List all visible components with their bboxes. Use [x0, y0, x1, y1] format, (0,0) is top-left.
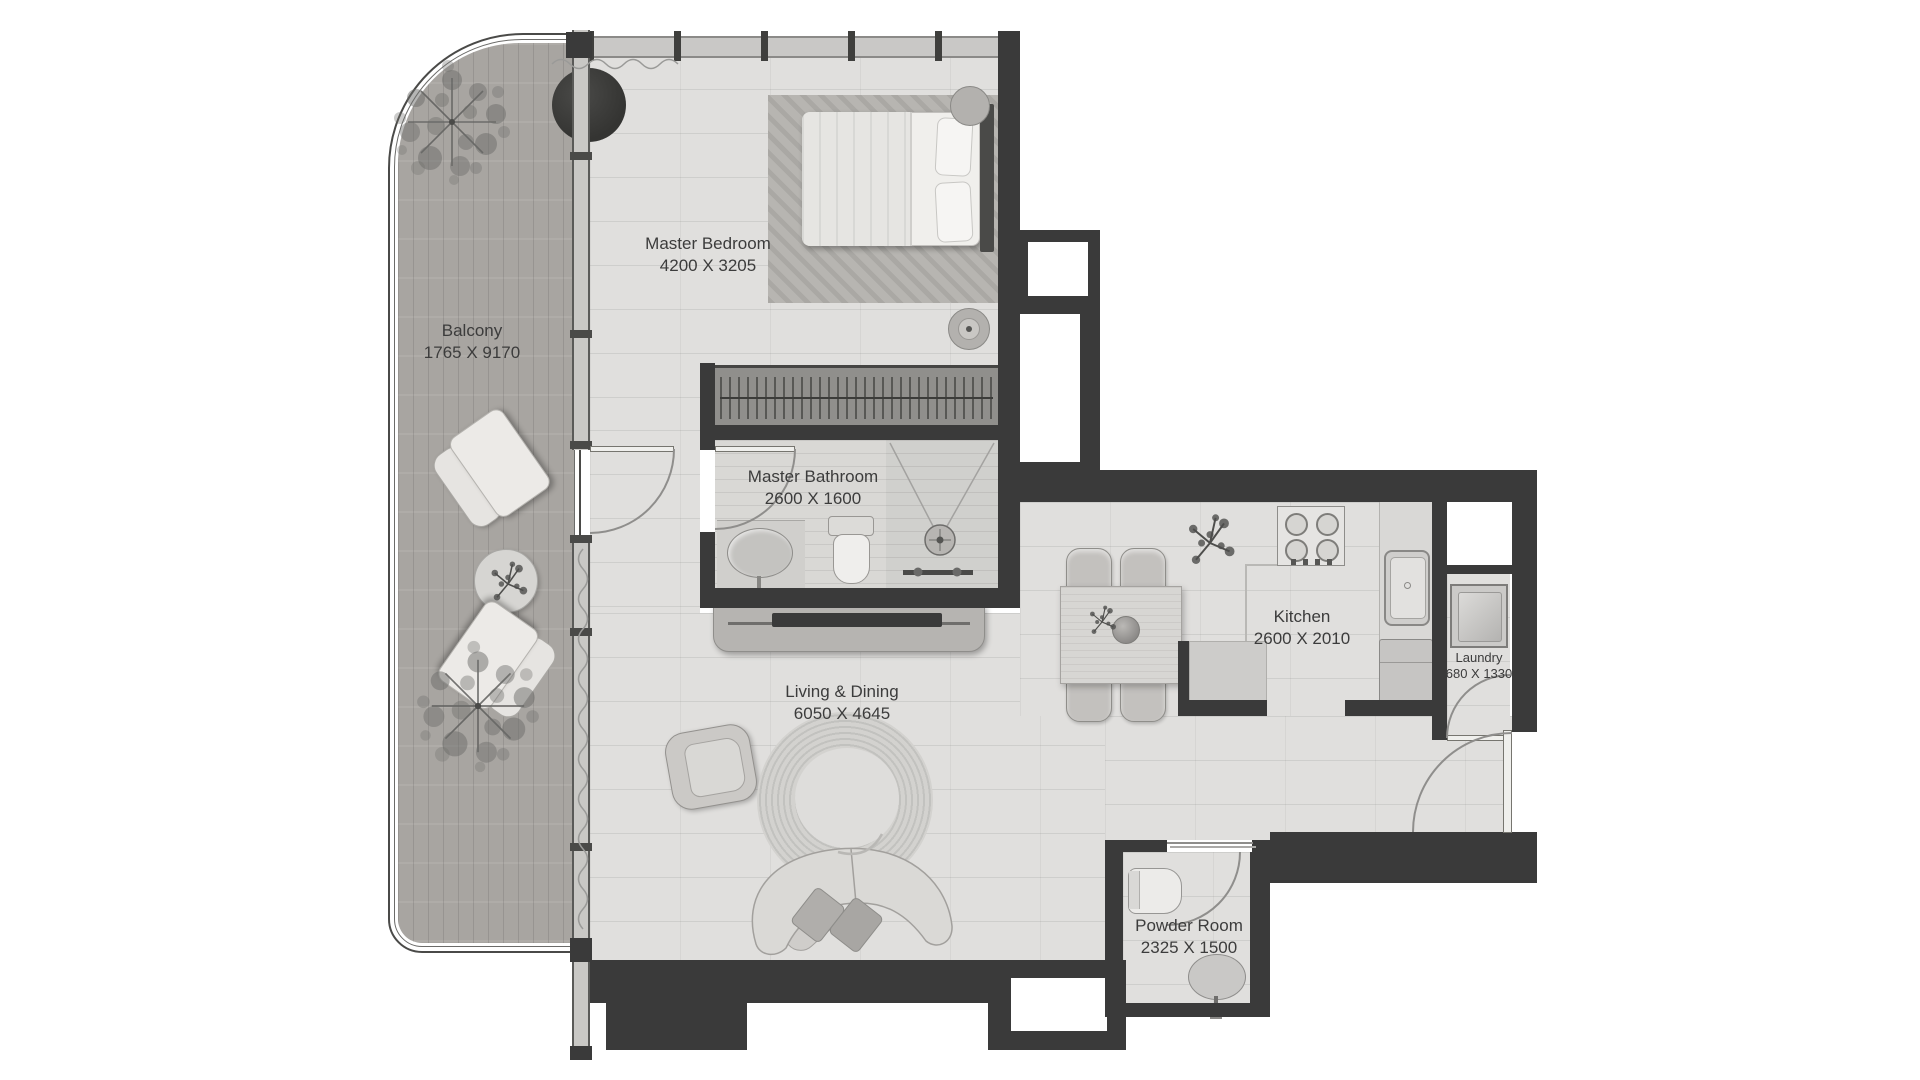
entry-door-leaf: [1503, 730, 1512, 833]
kitchen-bottom-stub-left: [1178, 700, 1267, 716]
room-dims: 2600 X 2010: [1254, 628, 1350, 650]
glass-mullion: [570, 535, 592, 543]
room-dims: 4200 X 3205: [645, 255, 771, 277]
room-dims: 2325 X 1500: [1135, 937, 1243, 959]
shaft-void-upper: [1028, 242, 1088, 296]
glass-wall-bottom-cap: [570, 1046, 592, 1060]
corridor-floor: [590, 430, 700, 613]
bathroom-door-leaf: [715, 446, 795, 452]
kitchen-counter-line-v: [1245, 564, 1247, 642]
bed-pillow: [934, 181, 973, 243]
room-label-master-bedroom: Master Bedroom 4200 X 3205: [645, 233, 771, 277]
room-name: Master Bedroom: [645, 233, 771, 255]
balcony-door-leaf: [590, 446, 674, 452]
burner: [1285, 513, 1308, 536]
headboard: [980, 104, 994, 252]
room-name: Powder Room: [1135, 915, 1243, 937]
stove-knob: [1315, 559, 1320, 565]
nightstand-bottom-dot: [966, 326, 972, 332]
dining-chair: [1066, 678, 1112, 722]
tv-console: [713, 604, 985, 652]
room-dims: 6050 X 4645: [785, 703, 898, 725]
kitchen-island: [1189, 641, 1267, 701]
bathroom-sink: [727, 528, 793, 578]
window-mullion: [848, 31, 855, 61]
shower-zone: [886, 440, 998, 588]
stove: [1277, 506, 1345, 566]
room-dims: 2600 X 1600: [748, 488, 878, 510]
laundry-door-leaf: [1447, 735, 1510, 741]
tv: [772, 613, 942, 627]
bottom-wall-opening: [1011, 978, 1107, 1031]
powder-sink: [1188, 954, 1246, 1000]
toilet: [833, 534, 870, 584]
room-label-kitchen: Kitchen 2600 X 2010: [1254, 606, 1350, 650]
room-name: Master Bathroom: [748, 466, 878, 488]
room-dims: 680 X 1330: [1446, 666, 1513, 682]
bed-pillow: [935, 117, 974, 177]
shaft-void-lower: [1020, 314, 1080, 462]
toilet-tank: [828, 516, 874, 536]
right-outer-wall-upper: [1512, 470, 1537, 732]
window-mullion: [935, 31, 942, 61]
kitchen-sink: [1384, 550, 1430, 626]
powder-top-wall-a: [1105, 840, 1167, 852]
fridge-divider: [1380, 662, 1432, 663]
room-label-balcony: Balcony 1765 X 9170: [424, 320, 520, 364]
laundry-void-separator: [1447, 565, 1512, 574]
kitchen-top-wall: [1020, 470, 1537, 502]
bottom-wall-block-left: [606, 1003, 747, 1050]
kitchen-counter-line-h: [1246, 564, 1279, 566]
bedroom-right-wall: [998, 31, 1020, 608]
room-label-powder-room: Powder Room 2325 X 1500: [1135, 915, 1243, 959]
glass-wall-mid-cap: [570, 938, 592, 962]
kitchen-bottom-stub-right: [1345, 700, 1447, 716]
window-mullion: [674, 31, 681, 61]
bed-blanket: [802, 112, 912, 246]
room-dims: 1765 X 9170: [424, 342, 520, 364]
powder-right-wall: [1250, 852, 1270, 1017]
balcony-glass-wall-upper: [572, 30, 590, 450]
dining-chair: [1120, 678, 1166, 722]
room-name: Living & Dining: [785, 681, 898, 703]
stove-knob: [1291, 559, 1296, 565]
wardrobe: [715, 365, 998, 425]
room-label-master-bathroom: Master Bathroom 2600 X 1600: [748, 466, 878, 510]
round-rug-inner: [795, 748, 899, 848]
room-name: Laundry: [1446, 650, 1513, 666]
powder-bottom-wall: [1105, 1003, 1270, 1017]
balcony-glass-wall-lower: [572, 535, 590, 1058]
powder-toilet-tank: [1129, 871, 1140, 909]
room-name: Kitchen: [1254, 606, 1350, 628]
bathroom-left-wall-upper: [700, 363, 715, 450]
powder-sliding-door: [1167, 842, 1253, 844]
wardrobe-rail: [720, 397, 993, 399]
glass-mullion: [570, 843, 592, 851]
washer-drum: [1458, 592, 1502, 642]
armchair-cushion: [683, 736, 748, 799]
glass-mullion: [570, 152, 592, 160]
burner: [1316, 513, 1339, 536]
fridge: [1379, 639, 1433, 709]
bedroom-window-wall: [570, 36, 1020, 58]
glass-mullion: [570, 628, 592, 636]
powder-sliding-door-track: [1170, 846, 1256, 848]
bathroom-bottom-wall: [700, 588, 1020, 608]
nightstand-top: [950, 86, 990, 126]
window-mullion: [761, 31, 768, 61]
stove-knob: [1327, 559, 1332, 565]
glass-mullion: [570, 330, 592, 338]
room-label-laundry: Laundry 680 X 1330: [1446, 650, 1513, 682]
glass-wall-top-cap: [566, 32, 592, 58]
right-outer-wall-lower: [1270, 832, 1537, 883]
floor-plan: Balcony 1765 X 9170 Master Bedroom 4200 …: [0, 0, 1920, 1080]
armchair: [662, 721, 760, 813]
powder-left-wall: [1105, 840, 1123, 1017]
powder-toilet: [1128, 868, 1182, 914]
washing-machine: [1450, 584, 1508, 648]
island-wall-edge: [1178, 641, 1189, 701]
stove-knob: [1303, 559, 1308, 565]
table-centerpiece: [1112, 616, 1140, 644]
room-label-living-dining: Living & Dining 6050 X 4645: [785, 681, 898, 725]
glass-mullion: [570, 441, 592, 449]
bathroom-top-wall: [715, 425, 998, 440]
room-name: Balcony: [424, 320, 520, 342]
kitchen-sink-drain: [1404, 582, 1411, 589]
